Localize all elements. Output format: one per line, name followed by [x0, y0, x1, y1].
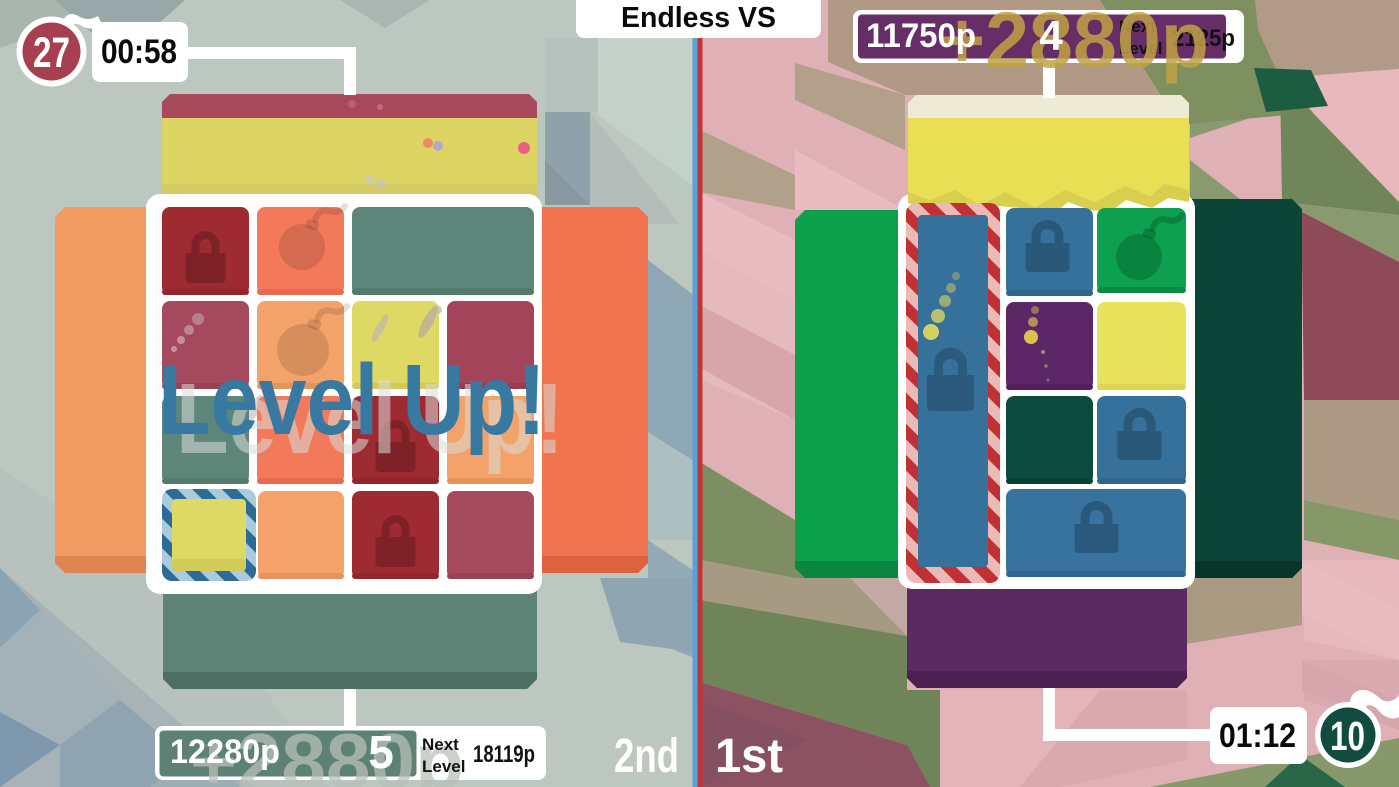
svg-text:Level: Level [422, 757, 465, 776]
svg-text:Level Up!: Level Up! [158, 344, 546, 456]
svg-text:10: 10 [1330, 713, 1365, 759]
svg-text:12280p: 12280p [170, 733, 280, 771]
svg-text:5: 5 [368, 726, 394, 778]
svg-text:4: 4 [1039, 12, 1063, 59]
svg-text:18119p: 18119p [473, 741, 535, 768]
svg-text:1st: 1st [715, 730, 783, 783]
svg-text:01:12: 01:12 [1219, 717, 1296, 755]
svg-text:00:58: 00:58 [101, 33, 177, 71]
svg-text:27: 27 [33, 29, 70, 77]
svg-text:2nd: 2nd [614, 730, 679, 783]
svg-text:Endless VS: Endless VS [621, 2, 776, 34]
svg-text:+2880p: +2880p [939, 0, 1209, 84]
svg-text:Next: Next [422, 735, 459, 754]
svg-text:11750p: 11750p [866, 17, 976, 55]
